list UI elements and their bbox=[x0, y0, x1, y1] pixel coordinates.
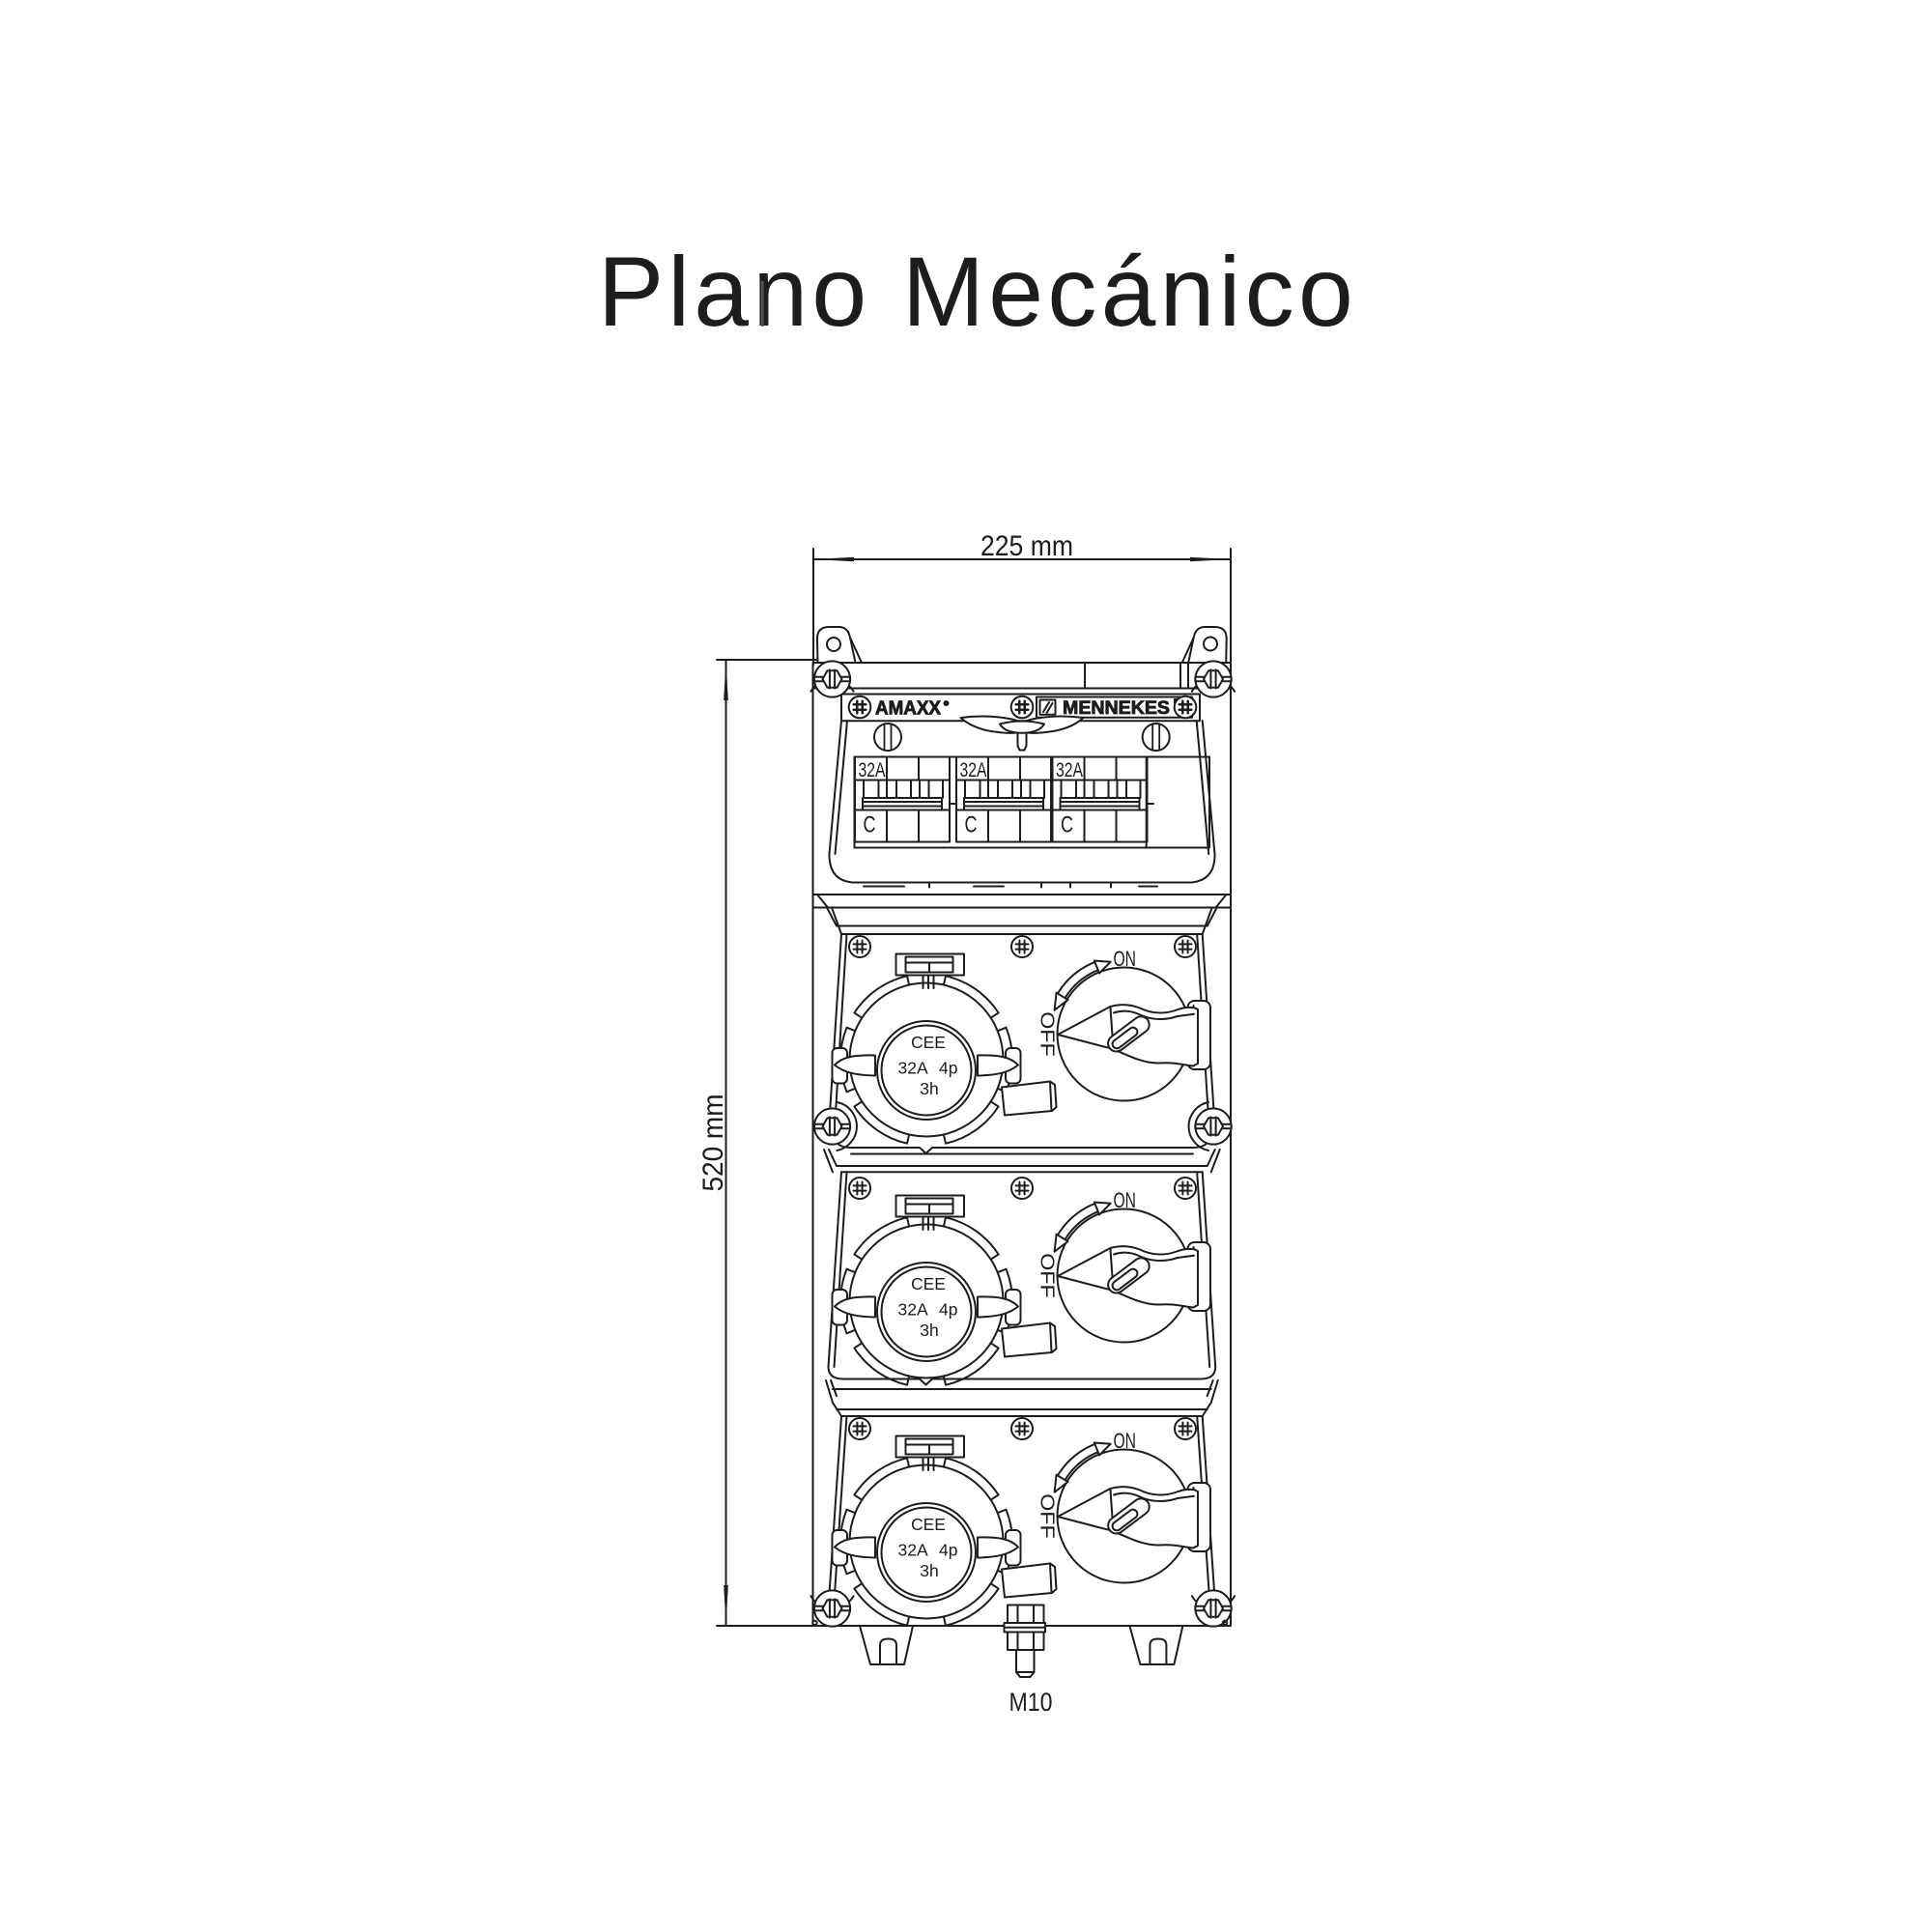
svg-text:MENNEKES: MENNEKES bbox=[1063, 698, 1170, 719]
svg-text:520 mm: 520 mm bbox=[697, 1094, 729, 1192]
svg-text:225 mm: 225 mm bbox=[980, 530, 1073, 562]
svg-text:M10: M10 bbox=[1009, 1688, 1053, 1717]
svg-text:AMAXX: AMAXX bbox=[875, 697, 941, 720]
svg-text:Plano Mecánico: Plano Mecánico bbox=[598, 237, 1357, 347]
